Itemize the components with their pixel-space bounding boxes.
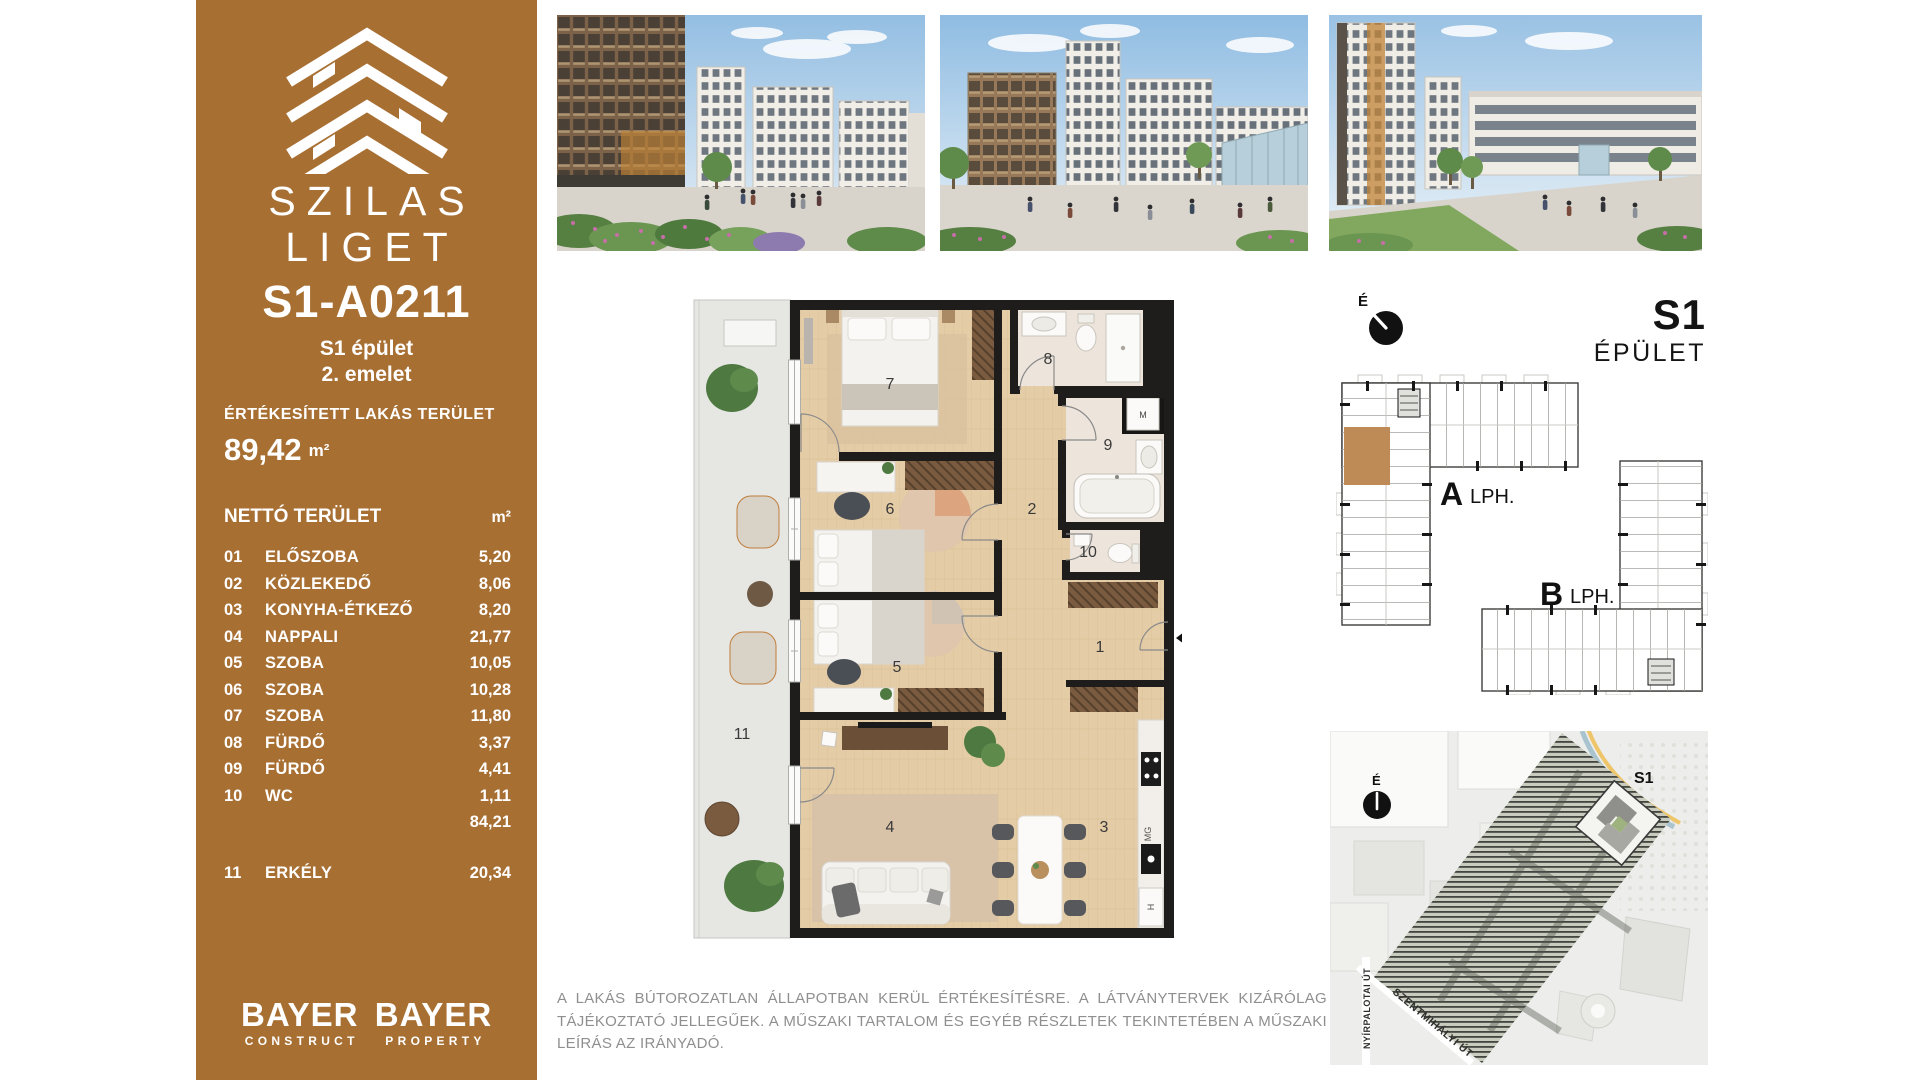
stair-b-letter: B xyxy=(1540,576,1563,612)
room-label-10: 10 xyxy=(1079,544,1097,561)
balcony-armchair xyxy=(730,632,776,684)
tv xyxy=(858,722,932,728)
row-spacer xyxy=(224,836,511,860)
room-no: 01 xyxy=(224,544,265,571)
room-no: 04 xyxy=(224,624,265,651)
room-area: 10,28 xyxy=(470,677,511,704)
entrance-arrow-icon xyxy=(1176,626,1182,650)
room-no: 07 xyxy=(224,703,265,730)
bedroom6-wardrobe xyxy=(905,460,997,490)
room-no: 11 xyxy=(224,860,265,887)
balcony-stool xyxy=(747,581,773,607)
washer-label: M xyxy=(1139,410,1147,420)
net-area-header: NETTÓ TERÜLET m² xyxy=(224,506,511,528)
room-name: KONYHA-ÉTKEZŐ xyxy=(265,597,479,624)
unit-building: S1 épület xyxy=(196,336,537,362)
room-name: SZOBA xyxy=(265,703,471,730)
sold-area-label: ÉRTÉKESÍTETT LAKÁS TERÜLET xyxy=(224,406,511,424)
table-row: 05SZOBA10,05 xyxy=(224,650,511,677)
table-row: 01ELŐSZOBA5,20 xyxy=(224,544,511,571)
net-area-label: NETTÓ TERÜLET xyxy=(224,506,381,528)
room-no: 09 xyxy=(224,756,265,783)
room-area: 1,11 xyxy=(480,783,511,810)
room-name: ERKÉLY xyxy=(265,860,470,887)
building-tag: S1 ÉPÜLET xyxy=(1520,294,1706,368)
room-area: 10,05 xyxy=(470,650,511,677)
unit-floor: 2. emelet xyxy=(196,362,537,388)
render-photo-street xyxy=(1329,15,1702,251)
compass-letter: É xyxy=(1358,293,1368,310)
room-no: 06 xyxy=(224,677,265,704)
balcony: 11 xyxy=(694,300,790,938)
cooktop xyxy=(1141,752,1161,786)
room-label-1: 1 xyxy=(1096,639,1105,656)
room-label-9: 9 xyxy=(1104,437,1113,454)
room-name: SZOBA xyxy=(265,650,470,677)
room-area: 3,37 xyxy=(479,730,511,757)
room-area: 8,20 xyxy=(479,597,511,624)
room-name: FÜRDŐ xyxy=(265,756,479,783)
building-code: S1 xyxy=(1520,294,1706,336)
room-label-7: 7 xyxy=(886,376,895,393)
room-label-2: 2 xyxy=(1028,501,1037,518)
room-area: 4,41 xyxy=(479,756,511,783)
room-name: SZOBA xyxy=(265,677,470,704)
room-no: 05 xyxy=(224,650,265,677)
apartment-floorplan: 11 xyxy=(692,294,1182,944)
table-row: 07SZOBA11,80 xyxy=(224,703,511,730)
room-area: 5,20 xyxy=(479,544,511,571)
map-compass-letter: É xyxy=(1372,773,1381,788)
sold-area-value: 89,42 xyxy=(224,432,302,467)
room-area: 21,77 xyxy=(470,624,511,651)
room-label-4: 4 xyxy=(886,819,895,836)
stair-b-suffix: LPH. xyxy=(1570,586,1614,608)
brand-name: SZILAS LIGET xyxy=(196,178,537,271)
room-name: FÜRDŐ xyxy=(265,730,479,757)
sidebar: SZILAS LIGET S1-A0211 S1 épület 2. emele… xyxy=(196,0,537,1080)
table-row: 09FÜRDŐ4,41 xyxy=(224,756,511,783)
unit-subtitle: S1 épület 2. emelet xyxy=(196,336,537,389)
room-name: NAPPALI xyxy=(265,624,470,651)
tower-building xyxy=(1337,23,1415,205)
render-photo-courtyard xyxy=(557,15,925,251)
room-area: 8,06 xyxy=(479,571,511,598)
disclaimer-line2: JELLEGŰEK. A MŰSZAKI TARTALOM ÉS EGYÉB R… xyxy=(557,1013,1327,1053)
room-no: 08 xyxy=(224,730,265,757)
bayer-logo-subline: PROPERTY xyxy=(375,1034,493,1048)
site-s1-tag: S1 xyxy=(1634,770,1654,787)
bayer-logo-wordmark: BAYER xyxy=(241,999,359,1030)
entry-wardrobe xyxy=(1068,582,1158,608)
floor-overview-plan: A LPH. B LPH. xyxy=(1336,373,1708,695)
table-row: 06SZOBA10,28 xyxy=(224,677,511,704)
area-table: ÉRTÉKESÍTETT LAKÁS TERÜLET 89,42m² NETTÓ… xyxy=(224,406,511,886)
room-name: WC xyxy=(265,783,480,810)
render-photo-plaza xyxy=(940,15,1308,251)
brand-name-line1: SZILAS xyxy=(196,178,537,224)
bedroom5-wardrobe xyxy=(898,688,984,714)
hall-wardrobe xyxy=(1070,686,1138,712)
room-label-6: 6 xyxy=(886,501,895,518)
room-no: 03 xyxy=(224,597,265,624)
bayer-logo-wordmark: BAYER xyxy=(375,999,493,1030)
tv-console xyxy=(842,726,948,750)
kitchen-counter: MG H xyxy=(1138,720,1164,928)
room-no: 02 xyxy=(224,571,265,598)
room-label-8: 8 xyxy=(1044,351,1053,368)
dining-set xyxy=(992,816,1086,924)
street-name-vertical: NYÍRPALOTAI ÚT xyxy=(1361,968,1372,1049)
room-rows: 01ELŐSZOBA5,20 02KÖZLEKEDŐ8,06 03KONYHA-… xyxy=(224,544,511,886)
szilas-liget-roof-logo-icon xyxy=(277,26,457,179)
balcony-table xyxy=(705,802,739,836)
table-row: 08FÜRDŐ3,37 xyxy=(224,730,511,757)
bayer-property-logo: BAYER PROPERTY xyxy=(375,999,493,1048)
brochure-page: SZILAS LIGET S1-A0211 S1 épület 2. emele… xyxy=(0,0,1920,1080)
room-label-3: 3 xyxy=(1100,819,1109,836)
room-name: ELŐSZOBA xyxy=(265,544,479,571)
disclaimer: A LAKÁS BÚTOROZATLAN ÁLLAPOTBAN KERÜL ÉR… xyxy=(557,988,1327,1056)
foreground-building xyxy=(557,15,685,207)
room-label-11: 11 xyxy=(734,726,751,743)
wing-b xyxy=(1482,461,1706,695)
net-area-unit: m² xyxy=(491,509,511,527)
sold-area-unit: m² xyxy=(309,441,330,460)
bedroom7-wardrobe xyxy=(972,308,996,380)
table-row: 03KONYHA-ÉTKEZŐ8,20 xyxy=(224,597,511,624)
bayer-logo-subline: CONSTRUCT xyxy=(241,1034,359,1048)
balcony-armchair xyxy=(737,496,779,548)
table-row: 04NAPPALI21,77 xyxy=(224,624,511,651)
footer-logos: BAYER CONSTRUCT BAYER PROPERTY xyxy=(196,999,537,1048)
brand-name-line2: LIGET xyxy=(196,224,537,270)
room-label-5: 5 xyxy=(893,659,902,676)
stair-a-suffix: LPH. xyxy=(1470,486,1514,508)
planter-box xyxy=(724,320,776,346)
room-area: 11,80 xyxy=(471,703,511,730)
site-map: S1 É NYÍRPALOTAI ÚT SZENTMIHÁLYI ÚT xyxy=(1330,731,1708,1065)
kitchen-mg-label: MG xyxy=(1143,827,1153,842)
unit-id: S1-A0211 xyxy=(196,276,537,328)
sold-area-value-row: 89,42m² xyxy=(224,432,511,468)
subtotal-value: 84,21 xyxy=(470,809,511,836)
kitchen-h-label: H xyxy=(1146,904,1156,911)
north-compass-icon: É xyxy=(1350,290,1416,356)
building-word: ÉPÜLET xyxy=(1520,339,1706,368)
room-no: 10 xyxy=(224,783,265,810)
stair-a-letter: A xyxy=(1440,476,1463,512)
balcony-row: 11ERKÉLY20,34 xyxy=(224,860,511,887)
area-subtotal-row: 84,21 xyxy=(224,809,511,836)
bayer-construct-logo: BAYER CONSTRUCT xyxy=(241,999,359,1048)
table-row: 10WC1,11 xyxy=(224,783,511,810)
room-area: 20,34 xyxy=(470,860,511,887)
room-name: KÖZLEKEDŐ xyxy=(265,571,479,598)
highlighted-unit xyxy=(1344,427,1390,485)
table-row: 02KÖZLEKEDŐ8,06 xyxy=(224,571,511,598)
